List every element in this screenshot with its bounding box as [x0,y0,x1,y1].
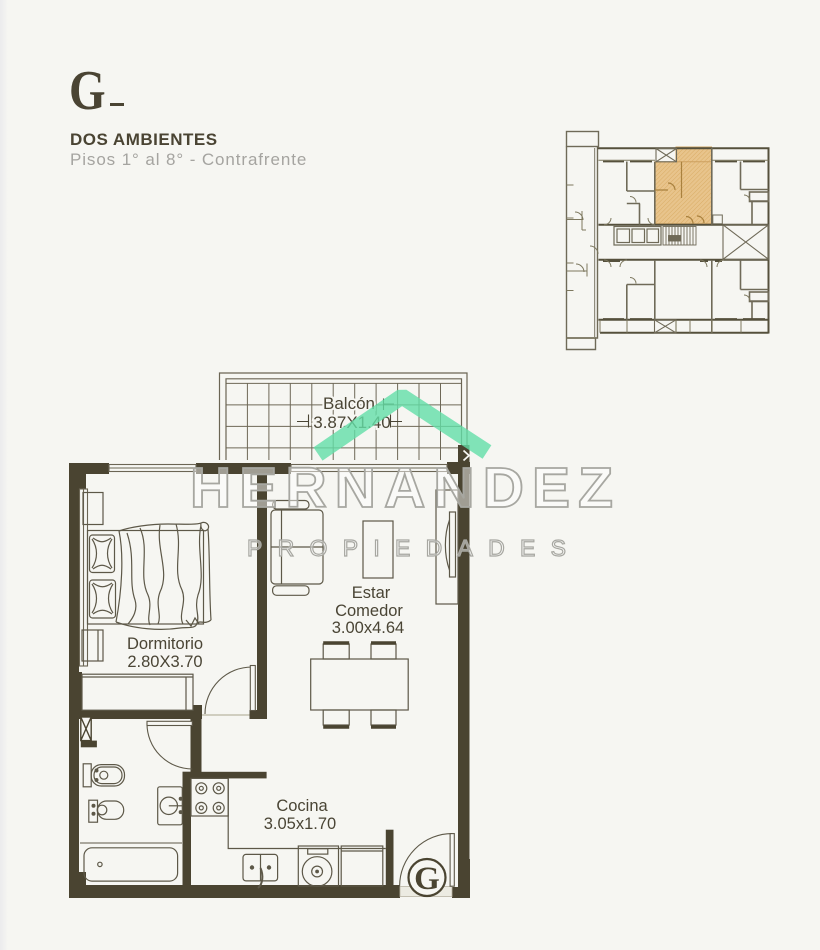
svg-text:HERNANDEZ: HERNANDEZ [190,456,613,520]
svg-text:2.80X3.70: 2.80X3.70 [127,653,202,671]
svg-text:PROPIEDADES: PROPIEDADES [247,535,566,561]
svg-text:3.00x4.64: 3.00x4.64 [332,619,404,637]
svg-text:Estar: Estar [352,584,391,602]
svg-text:Comedor: Comedor [335,602,403,620]
svg-text:Balcón: Balcón [323,394,375,413]
svg-text:3.05x1.70: 3.05x1.70 [264,815,336,833]
svg-text:Cocina: Cocina [276,797,328,815]
svg-text:Dormitorio: Dormitorio [127,635,203,653]
svg-text:G: G [414,861,440,897]
